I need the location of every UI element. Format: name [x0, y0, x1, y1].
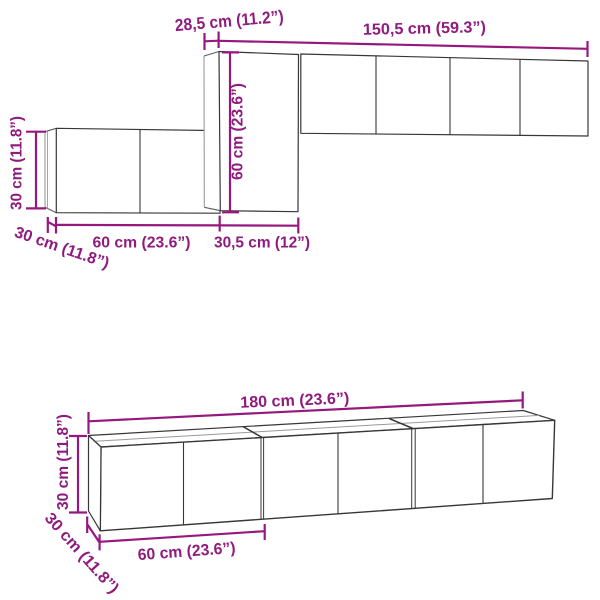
svg-text:150,5 cm (59.3”): 150,5 cm (59.3”)	[363, 19, 486, 39]
svg-text:30,5 cm (12”): 30,5 cm (12”)	[214, 235, 310, 252]
svg-text:60 cm (23.6”): 60 cm (23.6”)	[93, 235, 191, 252]
svg-text:30 cm (11.8”): 30 cm (11.8”)	[9, 116, 26, 210]
svg-text:30 cm (11.8”): 30 cm (11.8”)	[55, 414, 72, 510]
svg-text:60 cm (23.6”): 60 cm (23.6”)	[230, 83, 247, 180]
